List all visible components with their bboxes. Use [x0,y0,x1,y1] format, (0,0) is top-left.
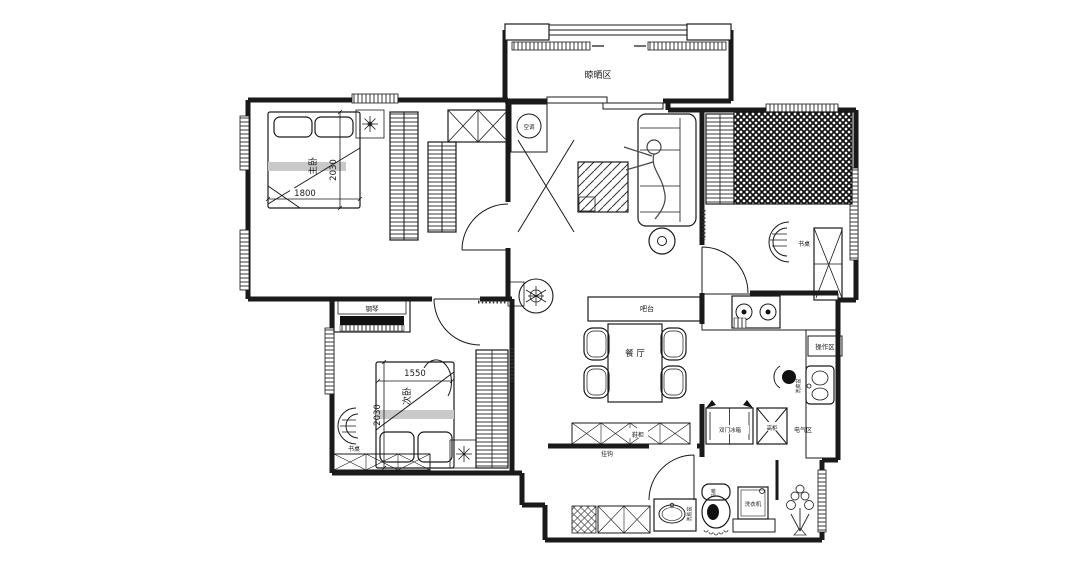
master-bedroom [266,110,508,250]
ceiling-lamp-icon [456,446,472,462]
work-area-label: 操作区 [815,342,835,351]
door-arc [434,299,480,345]
person-on-sofa [624,140,665,219]
ceiling-lamp-icon [362,116,378,132]
tv [578,162,628,212]
pillow [380,432,414,462]
washing-machine-label: 洗衣机 [745,500,762,508]
stool [782,370,796,384]
floor-plan: 晾晒区 空调 1800 2030 主卧 [0,0,1074,576]
curtain-strip [512,42,590,50]
second-depth-dim: 2030 [373,404,383,426]
second-desk-label: 书桌 [348,445,360,453]
dining-table [608,324,662,402]
master-width-dim: 1800 [294,189,316,199]
piano-label: 钢琴 [366,305,380,313]
window [818,470,826,532]
bed-runner [376,410,454,419]
dining-chairs [584,328,686,398]
curtain-strip [648,42,726,50]
window [240,230,249,290]
master-depth-dim: 2030 [329,159,339,181]
hooks-label: 挂钩 [601,450,613,458]
walls [248,30,856,540]
fridge-label: 双门冰箱 [719,426,742,434]
plant-icon [787,485,814,535]
bar-counter-label: 吧台 [640,304,654,313]
wash-basin-label: 洗脸盆 [686,506,693,521]
sliding-door-panel [603,103,663,109]
washing-machine [733,487,775,532]
desk-chair [769,222,789,262]
floor-plan-drawing: 晾晒区 空调 1800 2030 主卧 [0,0,1074,576]
piano-keys [340,316,404,325]
tatami-bed [734,112,852,204]
balcony-drying-area: 晾晒区 [584,69,611,81]
electrical-area-label: 电气区 [794,426,812,434]
kitchen-sink-label: 洗菜盆 [795,378,802,393]
second-bedroom-label: 次卧 [401,387,413,405]
door-arc [462,204,508,250]
window [325,328,334,394]
ac-label: 空调 [523,123,535,131]
balcony-wall-block [505,24,549,40]
door-arc [702,247,748,293]
sofa [638,114,696,226]
pillow [274,117,312,137]
shoe-cabinet-label: 鞋柜 [632,431,644,439]
corridor-plant [508,279,553,313]
dimension-line [376,379,454,383]
study-desk-label: 书桌 [798,240,810,248]
living-area [518,114,696,254]
sliding-door-panel [547,97,607,103]
window [240,116,249,170]
floor-lamp [649,228,675,254]
tall-cabinet-label: 高柜 [766,424,778,432]
drying-area-label: 晾晒区 [584,69,611,81]
dining-room-label: 餐 厅 [625,349,645,359]
master-bedroom-label: 主卧 [307,157,319,175]
wall-feature-lines [518,140,574,232]
window [352,94,398,103]
pillow [315,117,353,137]
fridge [706,400,753,444]
floor-mat [572,506,596,533]
second-width-dim: 1550 [404,369,426,379]
second-bedroom [334,298,508,470]
toilet-label: 马桶 [710,488,717,497]
study-room [702,112,852,300]
door-arc [649,455,694,500]
air-conditioner: 空调 [511,104,547,152]
balcony-wall-block [687,24,731,40]
